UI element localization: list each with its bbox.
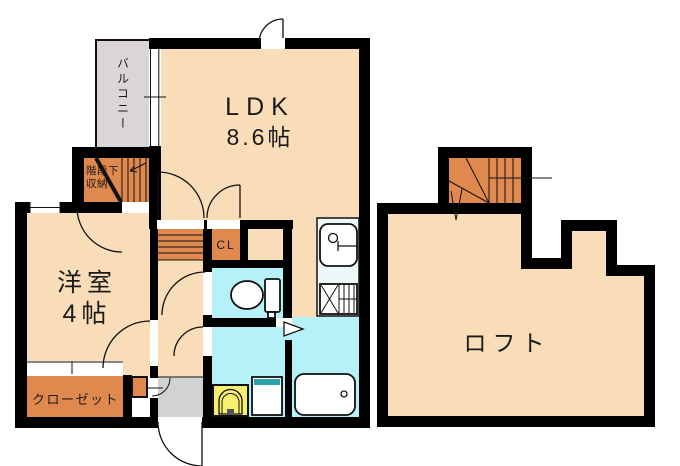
balcony-label: バルコニー <box>96 42 150 146</box>
ldk-size: 8.6帖 <box>185 123 335 152</box>
loft-label: ロフト <box>427 324 587 358</box>
stove-icon <box>320 284 357 314</box>
entrance-area <box>158 377 203 417</box>
stairs-lower-run <box>158 229 203 260</box>
loft-floor <box>388 214 644 416</box>
dead-space <box>248 229 283 260</box>
loft-structure <box>377 147 655 427</box>
front-door-arc <box>158 422 202 466</box>
closet-label: クローゼット <box>29 389 122 408</box>
western-room-window <box>30 202 60 213</box>
washer-pan-icon <box>213 385 248 416</box>
kitchen-sink-icon <box>320 224 357 266</box>
western-room-label: 洋室 4帖 <box>28 268 146 331</box>
ldk-label: LDK 8.6帖 <box>185 92 335 152</box>
bathtub-icon <box>295 374 355 415</box>
western-room-size: 4帖 <box>28 299 146 330</box>
under-stair-storage-label: 階段下 収納 <box>86 165 130 191</box>
floor-plan: LDK 8.6帖 洋室 4帖 ロフト バルコニー 階段下 収納 CL クローゼッ… <box>0 0 680 466</box>
ldk-name: LDK <box>185 92 335 123</box>
closet-door-track <box>27 361 123 376</box>
shoe-box <box>132 377 147 397</box>
cl-closet-label: CL <box>211 238 241 252</box>
kitchen-unit <box>317 218 359 316</box>
genkan-floor <box>158 377 203 417</box>
loft-stairs <box>438 147 552 220</box>
washbasin-icon <box>252 377 282 415</box>
western-room-name: 洋室 <box>28 268 146 299</box>
